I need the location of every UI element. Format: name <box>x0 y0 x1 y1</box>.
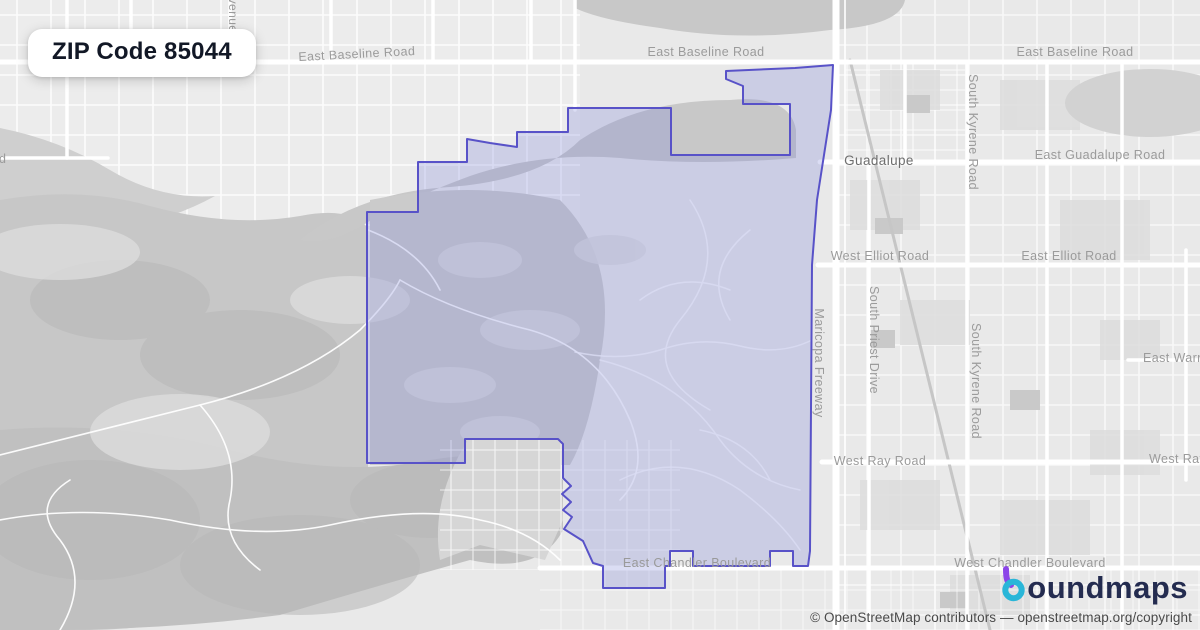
road-label-west-elliot-road: West Elliot Road <box>831 249 930 263</box>
boundmaps-logo: oundmaps <box>1000 566 1188 602</box>
road-label-east-baseline-road-east: East Baseline Road <box>1017 45 1134 59</box>
zip-title-badge: ZIP Code 85044 <box>28 29 256 77</box>
road-label-south-priest-drive: South Priest Drive <box>867 286 881 394</box>
road-label-south-kyrene-road-south: South Kyrene Road <box>969 323 983 439</box>
road-label-maricopa-freeway: Maricopa Freeway <box>812 308 826 418</box>
road-label-avenue-fragment: venue <box>226 0 240 32</box>
zip-title: ZIP Code 85044 <box>52 38 232 66</box>
road-label-west-ray-clipped: West Ray Road <box>1149 452 1200 466</box>
road-label-east-elliot-road: East Elliot Road <box>1021 249 1116 263</box>
osm-attribution: © OpenStreetMap contributors — openstree… <box>810 610 1192 625</box>
road-label-east-guadalupe-road: East Guadalupe Road <box>1035 148 1166 162</box>
boundmaps-wordmark: oundmaps <box>1027 572 1188 603</box>
boundmaps-b-icon <box>1000 566 1026 602</box>
map-canvas: East Baseline RoadEast Baseline RoadEast… <box>0 0 1200 630</box>
road-label-east-chandler-boulevard: East Chandler Boulevard <box>623 556 771 570</box>
road-label-west-ray-road: West Ray Road <box>834 454 927 468</box>
road-label-east-baseline-road-mid: East Baseline Road <box>648 45 765 59</box>
road-label-south-kyrene-road-north: South Kyrene Road <box>966 74 980 190</box>
map-share-image: { "badge": { "title": "ZIP Code 85044" }… <box>0 0 1200 630</box>
map-svg: East Baseline RoadEast Baseline RoadEast… <box>0 0 1200 630</box>
road-label-road-fragment: d <box>0 152 6 166</box>
road-label-east-warner-clipped: East Warner Road <box>1143 351 1200 365</box>
place-label-guadalupe: Guadalupe <box>844 153 914 168</box>
